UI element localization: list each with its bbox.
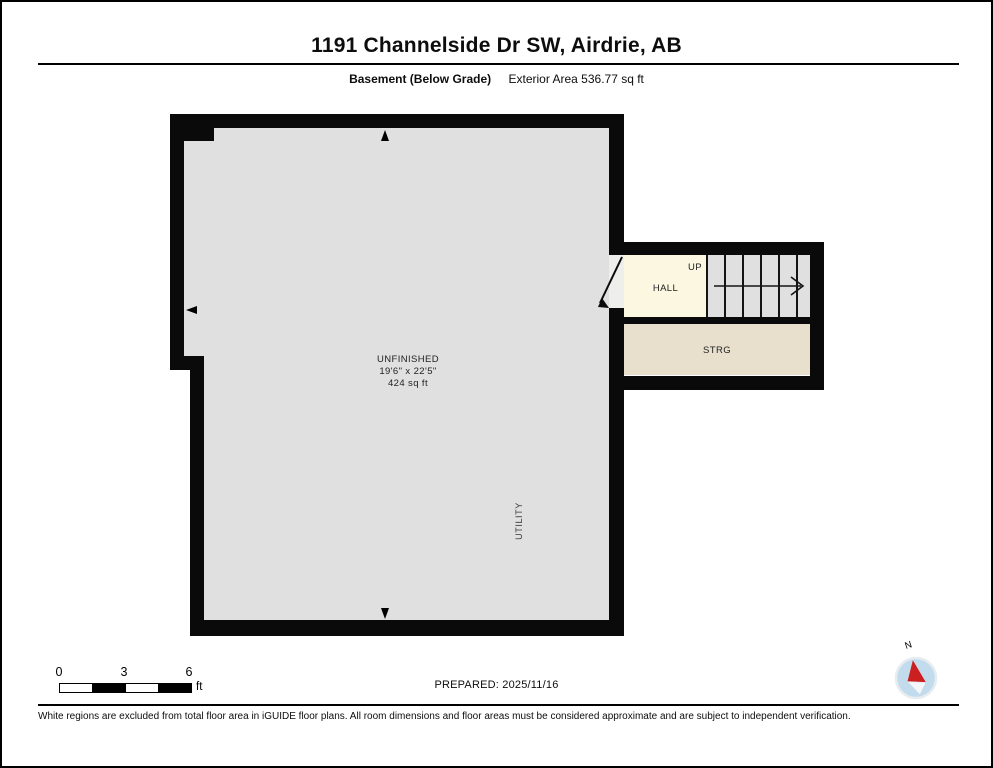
room-area: 424 sq ft (332, 378, 484, 390)
compass-icon: N (888, 640, 946, 704)
wall-extension-top (609, 242, 824, 255)
storage-label: STRG (624, 345, 810, 357)
wall-hall-storage-divider (624, 317, 810, 324)
wall-top (170, 114, 624, 128)
floor-name-label: Basement (Below Grade) (349, 72, 491, 86)
room-dimensions: 19'6" x 22'5" (332, 366, 484, 378)
room-name: UNFINISHED (332, 354, 484, 366)
stair-tread-line (742, 255, 744, 317)
scale-tick-6: 6 (174, 665, 204, 679)
hall-label: HALL (624, 283, 707, 295)
page-title: 1191 Channelside Dr SW, Airdrie, AB (2, 34, 991, 58)
utility-label: UTILITY (514, 471, 524, 571)
stair-tread-line (778, 255, 780, 317)
door-opening (609, 255, 624, 308)
wall-extension-right (810, 242, 824, 390)
stairs-up-label: UP (657, 262, 702, 274)
wall-extension-bottom (609, 376, 824, 390)
wall-left-lower (190, 356, 204, 636)
unfinished-room-label: UNFINISHED 19'6" x 22'5" 424 sq ft (332, 354, 484, 390)
stair-tread-line (760, 255, 762, 317)
header-divider (38, 63, 959, 65)
alignment-arrow-icon-top (381, 130, 389, 141)
wall-bottom (190, 620, 624, 636)
alignment-arrow-icon-left (186, 306, 197, 314)
stairs-floor (707, 255, 810, 317)
exterior-area-label: Exterior Area 536.77 sq ft (508, 72, 643, 86)
wall-right-lower (609, 308, 624, 636)
floor-subtitle: Basement (Below Grade) Exterior Area 536… (2, 72, 991, 86)
compass-rose-icon (888, 640, 946, 704)
disclaimer-text: White regions are excluded from total fl… (38, 711, 968, 722)
unfinished-room-floor-upper (184, 128, 609, 358)
floorplan-page: 1191 Channelside Dr SW, Airdrie, AB Base… (0, 0, 993, 768)
scale-tick-0: 0 (44, 665, 74, 679)
footer-divider (38, 704, 959, 706)
prepared-date-label: PREPARED: 2025/11/16 (2, 679, 991, 691)
alignment-arrow-icon-bottom (381, 608, 389, 619)
stair-tread-line (796, 255, 798, 317)
wall-right-upper (609, 114, 624, 255)
stair-tread-line (724, 255, 726, 317)
wall-left-upper (170, 114, 184, 358)
unfinished-room-floor-lower (204, 356, 609, 620)
scale-tick-3: 3 (109, 665, 139, 679)
